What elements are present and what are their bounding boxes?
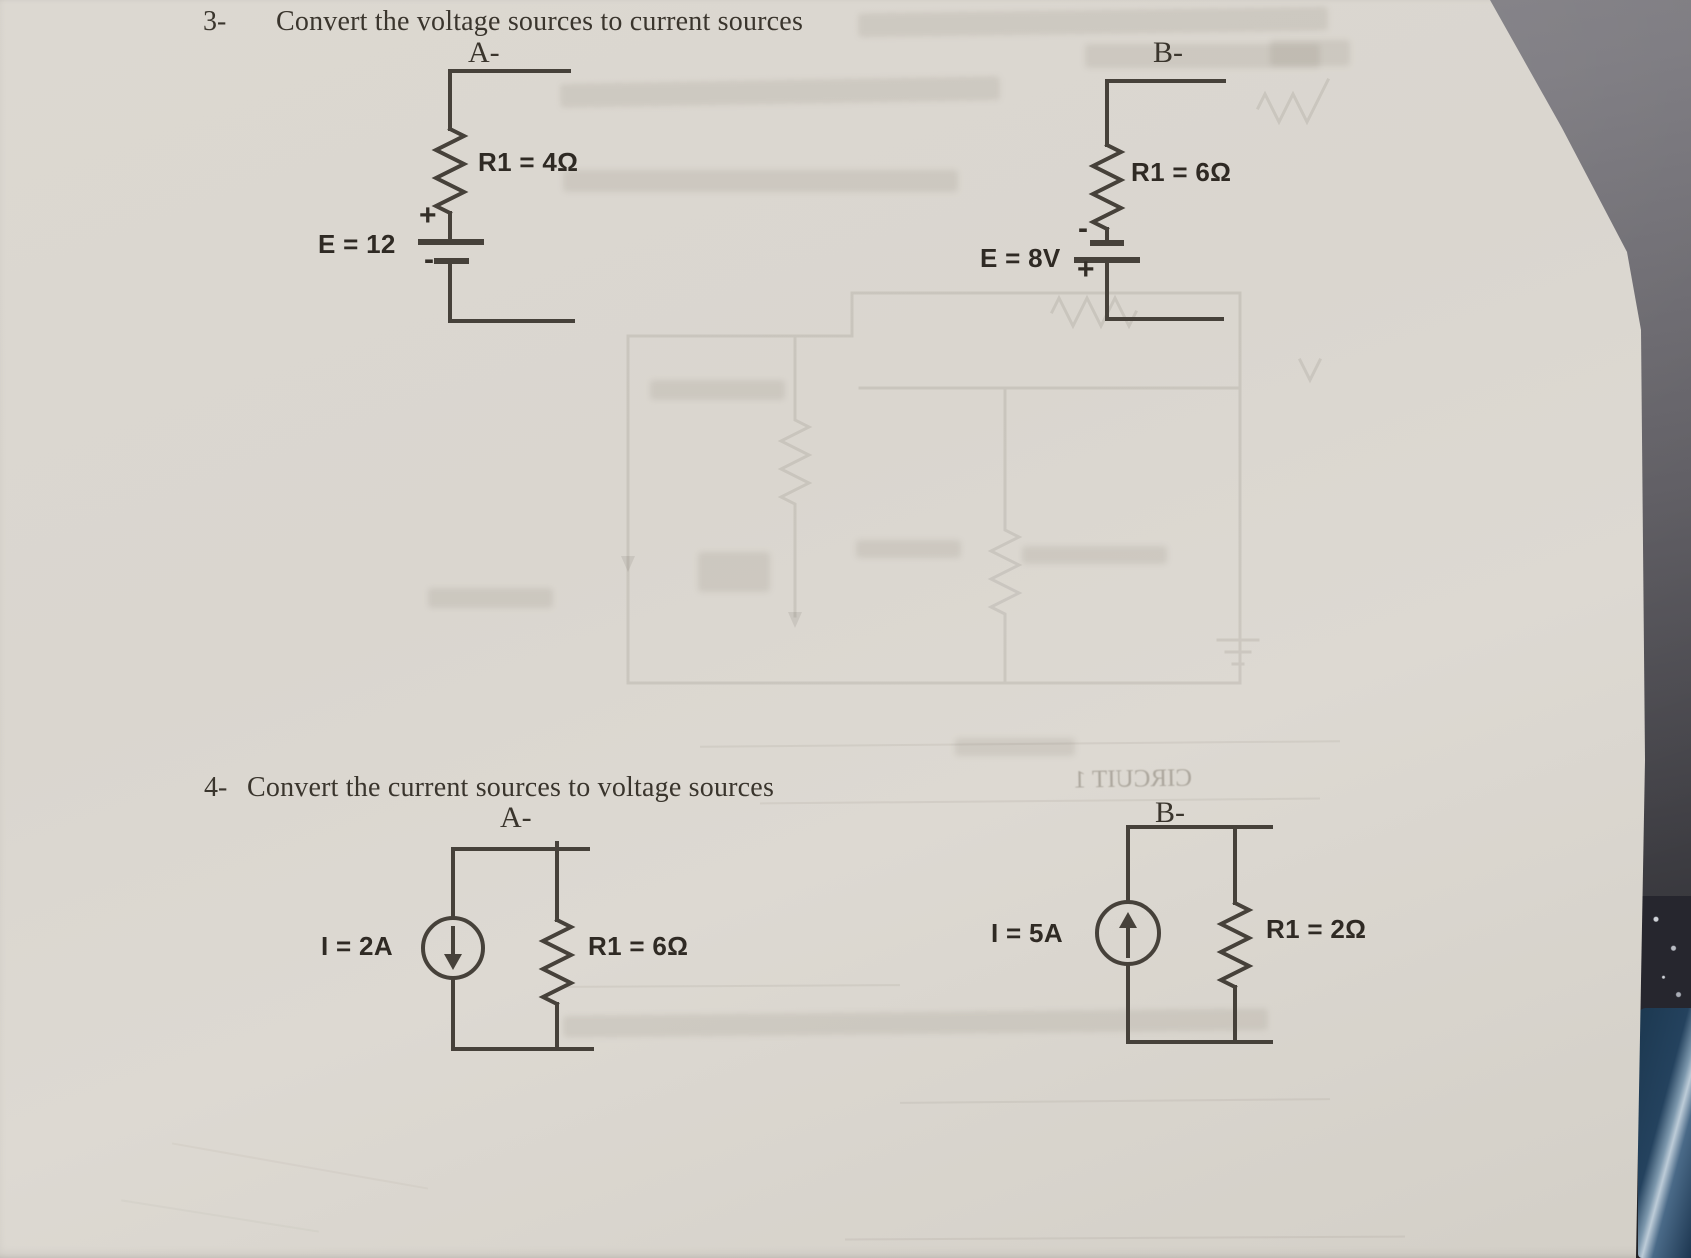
s3b-resistor-symbol [1093,145,1121,229]
worksheet-page: CIRCUIT 1 [0,0,1691,1258]
s3b-minus-sign: - [1078,214,1088,244]
s3b-resistor-label: R1 = 6Ω [1131,157,1231,188]
problem4-number: 4- [204,772,227,804]
s4-circuit-b-wires [1097,827,1271,1042]
s3b-node-label: B- [1153,36,1183,70]
s4-circuit-a-wires [423,843,592,1049]
s3-circuit-b-wires [1077,81,1224,319]
s3-circuit-a-wires [421,71,573,321]
blue-pen [1638,1008,1691,1258]
s4b-source-label: I = 5A [991,918,1063,949]
problem3-title: Convert the voltage sources to current s… [276,6,803,38]
s3b-plus-sign: + [1077,255,1095,285]
circuit-linework [0,0,1691,1258]
s3a-resistor-symbol [436,129,464,213]
s4b-arrowhead-up [1119,912,1137,928]
s4a-arrowhead-down [444,954,462,970]
s4a-resistor-symbol [543,920,571,1004]
s4a-source-label: I = 2A [321,931,393,962]
s4b-resistor-label: R1 = 2Ω [1266,914,1366,945]
s3a-node-label: A- [468,36,500,70]
s3a-resistor-label: R1 = 4Ω [478,147,578,178]
s3a-plus-sign: + [419,201,437,231]
problem4-title: Convert the current sources to voltage s… [247,772,774,804]
s3b-source-label: E = 8V [980,243,1061,274]
s4a-node-label: A- [500,801,532,835]
s3a-source-label: E = 12 [318,229,396,260]
problem3-number: 3- [203,6,226,38]
s4b-resistor-symbol [1221,903,1249,987]
s3a-minus-sign: - [424,245,434,275]
dark-object-edge [1641,896,1691,1012]
photo-of-worksheet: { "s3": { "number": "3-", "title": "Conv… [0,0,1691,1258]
s4a-resistor-label: R1 = 6Ω [588,931,688,962]
s4b-node-label: B- [1155,796,1185,830]
